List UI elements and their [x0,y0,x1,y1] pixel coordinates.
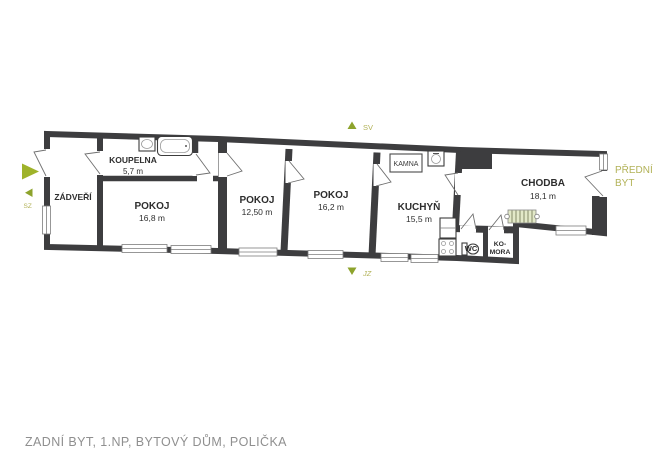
window [122,245,167,253]
front-apartment-label-line2: BYT [615,178,634,189]
window [411,255,438,263]
compass-south-icon [348,268,357,276]
bathroom-sink-icon [139,137,155,151]
door [219,153,228,177]
window [239,248,277,256]
room-labels: ZÁDVEŘÍ KOUPELNA 5,7 m POKOJ 16,8 m POKO… [54,155,565,256]
room-label-pokoj1: POKOJ [134,201,169,212]
room-label-zadveri: ZÁDVEŘÍ [54,191,92,202]
window [43,206,51,234]
door [193,153,200,176]
floor-plan-drawing: KAMNA [0,0,662,468]
kitchen-counter-icon [440,218,456,238]
room-area-pokoj3: 16,2 m [318,202,344,212]
floor-plan-page: KAMNA [0,0,662,468]
chimney-wall-stub [461,152,492,169]
room-area-kuchyn: 15,5 m [406,214,432,224]
room-label-koupelna: KOUPELNA [109,155,157,165]
entrance-arrow-icon [22,164,39,180]
room-label-chodba: CHODBA [521,178,565,189]
window [308,251,343,259]
front-apartment-label-line1: PŘEDNÍ [615,163,653,176]
compass-south-label: JZ [362,269,372,278]
room-label-kuchyn: KUCHYŇ [398,200,441,213]
room-label-pokoj3: POKOJ [313,190,348,201]
bathtub-icon [158,137,193,156]
passage-opening [197,176,213,183]
compass-north-icon [348,122,357,130]
room-area-pokoj2: 12,50 m [242,207,273,217]
kamna-box: KAMNA [390,154,422,172]
plan-caption: ZADNÍ BYT, 1.NP, BYTOVÝ DŮM, POLIČKA [25,434,287,449]
compass-north-label: SV [363,123,373,132]
room-label-komora-line1: KO- [494,241,506,248]
room-area-koupelna: 5,7 m [123,167,143,176]
room-label-komora-line2: MORA [490,249,511,256]
right-wall-thick-section [592,196,605,235]
room-area-chodba: 18,1 m [530,191,556,201]
stove-icon [439,239,456,256]
room-label-pokoj2: POKOJ [239,195,274,206]
compass-west-icon [25,189,33,198]
kamna-label: KAMNA [394,161,419,168]
window [381,254,408,262]
window [600,154,608,170]
room-label-wc: WC [465,244,478,253]
kitchen-sink-icon [428,151,444,166]
compass-west-label: SZ [24,203,32,210]
room-area-pokoj1: 16,8 m [139,213,165,223]
stairs-icon [505,210,540,223]
window [556,226,586,235]
window [171,246,211,254]
entrance-door [43,149,52,177]
